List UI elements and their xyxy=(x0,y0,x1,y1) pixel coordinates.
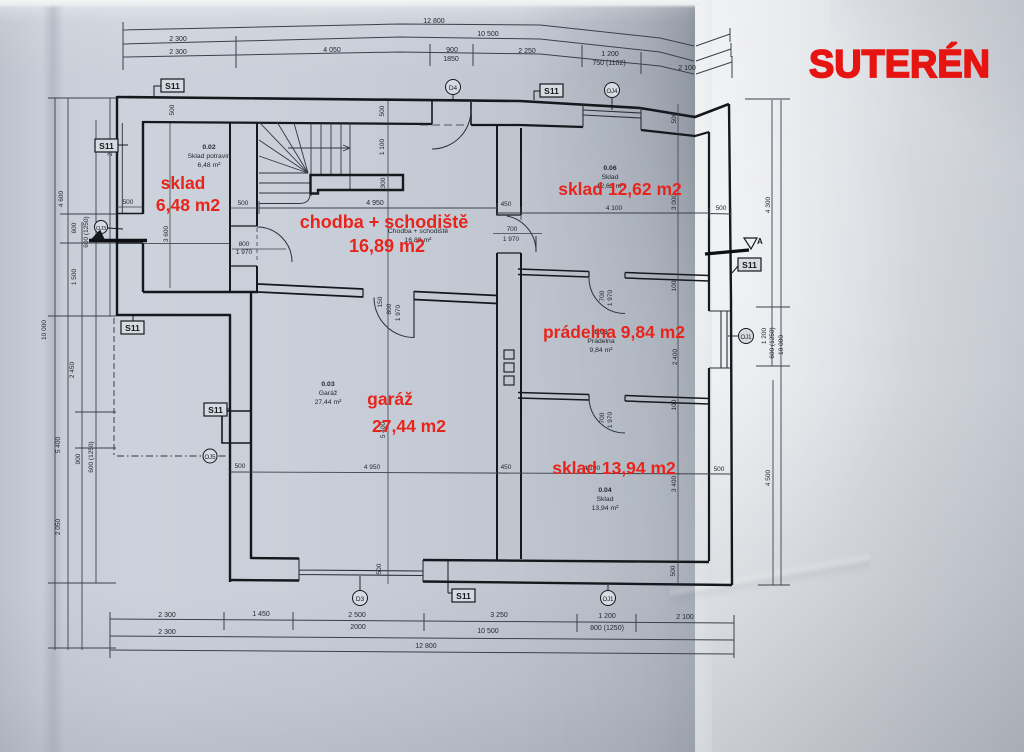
svg-text:27,44 m2: 27,44 m2 xyxy=(372,416,446,436)
svg-text:150: 150 xyxy=(377,296,384,307)
svg-text:D3: D3 xyxy=(356,596,365,603)
svg-text:10 000: 10 000 xyxy=(41,320,48,340)
svg-text:600 (1250): 600 (1250) xyxy=(769,327,776,358)
svg-text:600 (1250): 600 (1250) xyxy=(83,216,90,247)
svg-text:12 800: 12 800 xyxy=(423,18,445,25)
svg-text:4 600: 4 600 xyxy=(58,190,65,207)
svg-text:1 200: 1 200 xyxy=(761,327,768,344)
svg-text:500: 500 xyxy=(716,205,727,212)
svg-text:100: 100 xyxy=(671,280,678,291)
svg-text:750 (1102): 750 (1102) xyxy=(592,60,625,67)
svg-text:300: 300 xyxy=(380,177,387,188)
svg-text:2 100: 2 100 xyxy=(676,614,694,621)
svg-text:S11: S11 xyxy=(544,86,559,96)
svg-text:Garáž: Garáž xyxy=(319,390,338,397)
svg-text:6,48 m2: 6,48 m2 xyxy=(156,195,220,215)
svg-text:chodba + schodiště: chodba + schodiště xyxy=(300,212,469,232)
svg-text:100: 100 xyxy=(671,399,678,410)
svg-text:4 950: 4 950 xyxy=(364,464,381,471)
svg-text:2 450: 2 450 xyxy=(69,361,76,378)
svg-text:2 300: 2 300 xyxy=(158,612,176,619)
svg-text:500: 500 xyxy=(714,466,725,473)
svg-text:Sklad potravin: Sklad potravin xyxy=(187,153,230,160)
svg-text:2 250: 2 250 xyxy=(518,48,536,55)
svg-text:2 400: 2 400 xyxy=(672,348,679,365)
svg-text:1 100: 1 100 xyxy=(379,138,386,155)
svg-text:2 300: 2 300 xyxy=(169,49,187,56)
svg-text:12 800: 12 800 xyxy=(415,643,437,650)
svg-text:0.06: 0.06 xyxy=(603,165,616,172)
svg-text:9,84 m²: 9,84 m² xyxy=(589,347,613,354)
svg-text:A: A xyxy=(757,237,763,246)
svg-text:700: 700 xyxy=(507,226,518,233)
svg-text:6,48 m²: 6,48 m² xyxy=(197,162,221,169)
svg-text:1 970: 1 970 xyxy=(236,249,253,256)
svg-text:900: 900 xyxy=(75,453,82,464)
svg-text:1 970: 1 970 xyxy=(503,236,520,243)
svg-text:13,94 m²: 13,94 m² xyxy=(592,505,620,512)
svg-text:10 000: 10 000 xyxy=(778,335,785,355)
svg-text:4 950: 4 950 xyxy=(366,200,384,207)
svg-text:0.04: 0.04 xyxy=(598,487,611,494)
svg-text:OJ4: OJ4 xyxy=(606,89,618,95)
svg-text:2 500: 2 500 xyxy=(348,612,366,619)
svg-text:10 500: 10 500 xyxy=(477,628,499,635)
svg-text:sklad 13,94 m2: sklad 13,94 m2 xyxy=(552,458,676,478)
svg-text:Sklad: Sklad xyxy=(596,496,613,503)
svg-text:S11: S11 xyxy=(208,405,223,415)
svg-text:500: 500 xyxy=(235,463,246,470)
svg-text:1 200: 1 200 xyxy=(601,51,619,58)
svg-text:sklad: sklad xyxy=(161,173,206,193)
svg-text:OJ3: OJ3 xyxy=(96,226,106,232)
svg-text:1 970: 1 970 xyxy=(395,304,402,321)
svg-text:S11: S11 xyxy=(99,141,114,151)
svg-text:600: 600 xyxy=(71,222,78,233)
svg-text:OJ1: OJ1 xyxy=(740,335,752,341)
svg-text:27,44 m²: 27,44 m² xyxy=(315,399,343,406)
svg-text:1 970: 1 970 xyxy=(607,289,614,306)
svg-text:700: 700 xyxy=(599,412,606,423)
svg-text:sklad 12,62 m2: sklad 12,62 m2 xyxy=(558,179,682,199)
svg-text:OJ5: OJ5 xyxy=(204,455,216,461)
svg-text:500: 500 xyxy=(169,104,176,115)
svg-text:S11: S11 xyxy=(456,591,471,601)
svg-text:800 (1250): 800 (1250) xyxy=(590,625,624,632)
svg-text:S11: S11 xyxy=(742,260,757,270)
svg-text:4 300: 4 300 xyxy=(765,196,772,213)
svg-text:3 250: 3 250 xyxy=(490,612,508,619)
svg-text:10 500: 10 500 xyxy=(477,31,499,38)
svg-text:garáž: garáž xyxy=(367,389,413,409)
svg-text:2 050: 2 050 xyxy=(55,518,62,535)
svg-text:prádelna 9,84 m2: prádelna 9,84 m2 xyxy=(543,322,685,342)
svg-text:4 100: 4 100 xyxy=(606,205,623,212)
svg-text:2 300: 2 300 xyxy=(158,629,176,636)
svg-text:2 300: 2 300 xyxy=(169,36,187,43)
svg-text:16,89 m2: 16,89 m2 xyxy=(349,236,425,256)
svg-text:0.03: 0.03 xyxy=(321,381,334,388)
svg-text:800: 800 xyxy=(386,303,393,314)
svg-text:500: 500 xyxy=(376,563,383,574)
svg-text:1 500: 1 500 xyxy=(71,268,78,285)
svg-text:5 400: 5 400 xyxy=(55,436,62,453)
svg-text:500: 500 xyxy=(670,565,677,576)
svg-text:450: 450 xyxy=(501,201,512,208)
svg-text:4 050: 4 050 xyxy=(323,47,341,54)
svg-text:500: 500 xyxy=(671,112,678,123)
svg-text:D4: D4 xyxy=(449,85,458,92)
svg-text:4 500: 4 500 xyxy=(765,469,772,486)
svg-text:2 100: 2 100 xyxy=(678,65,696,72)
svg-text:900: 900 xyxy=(446,47,458,54)
svg-text:1 970: 1 970 xyxy=(607,411,614,428)
svg-text:S11: S11 xyxy=(125,323,140,333)
svg-text:1850: 1850 xyxy=(443,56,459,63)
svg-text:1 200: 1 200 xyxy=(598,613,616,620)
svg-text:SUTERÉN: SUTERÉN xyxy=(809,42,990,86)
svg-text:800: 800 xyxy=(239,241,250,248)
svg-text:3 600: 3 600 xyxy=(163,225,170,242)
svg-text:500: 500 xyxy=(123,199,134,206)
svg-text:700: 700 xyxy=(599,290,606,301)
svg-text:500: 500 xyxy=(379,105,386,116)
svg-text:0.02: 0.02 xyxy=(202,144,215,151)
svg-text:2000: 2000 xyxy=(350,624,366,631)
svg-text:450: 450 xyxy=(501,464,512,471)
svg-text:S11: S11 xyxy=(165,81,180,91)
svg-text:600 (1250): 600 (1250) xyxy=(88,441,95,472)
svg-text:OJ1: OJ1 xyxy=(602,597,614,603)
svg-text:500: 500 xyxy=(238,200,249,207)
svg-text:1 450: 1 450 xyxy=(252,611,270,618)
